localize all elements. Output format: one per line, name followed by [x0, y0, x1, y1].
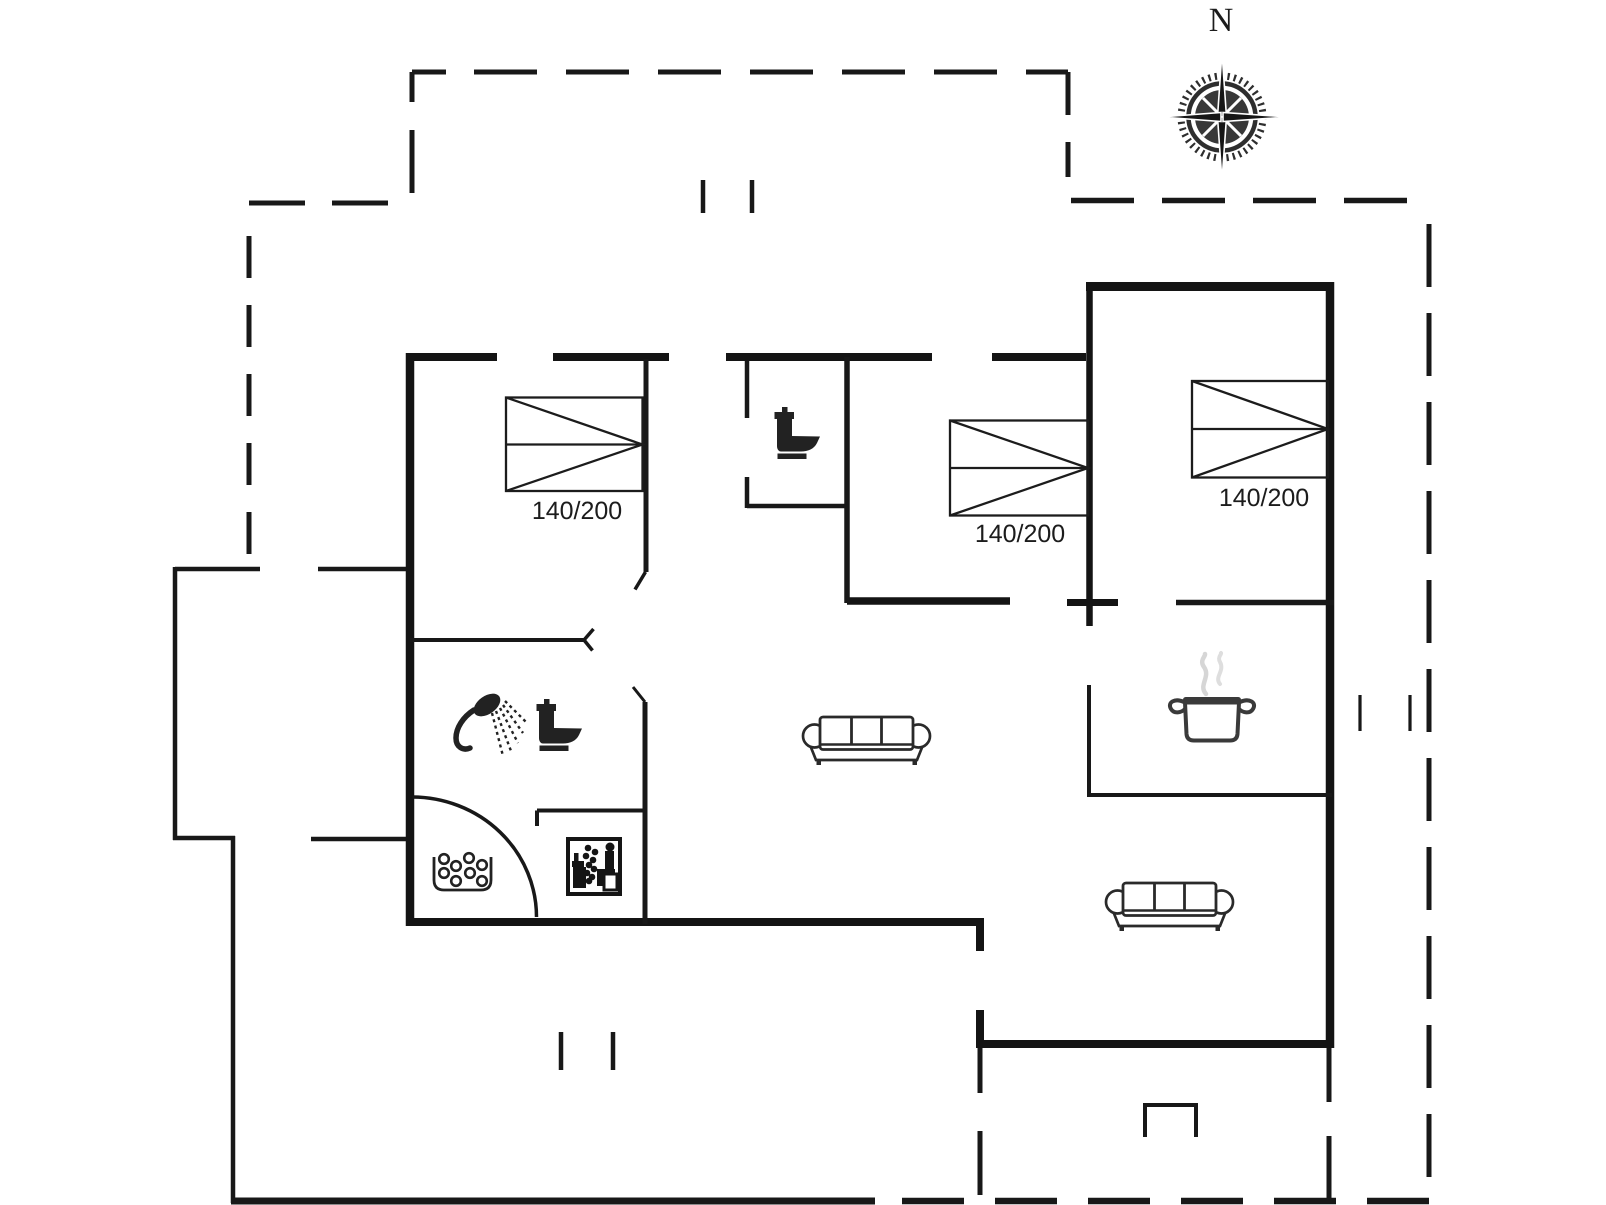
svg-text:140/200: 140/200	[532, 497, 622, 525]
svg-text:N: N	[1209, 2, 1234, 39]
svg-text:140/200: 140/200	[1219, 484, 1309, 512]
svg-text:140/200: 140/200	[975, 520, 1065, 548]
